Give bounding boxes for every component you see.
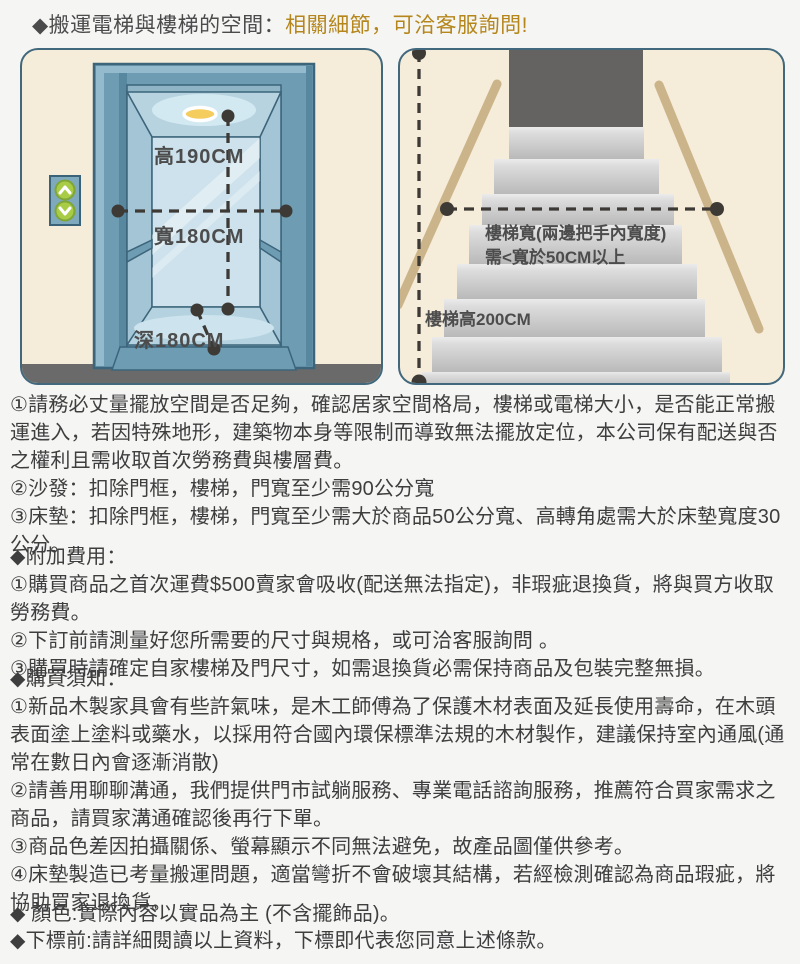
stair-width-label-line2: 需<寬於50CM以上 <box>485 246 666 270</box>
page-title-highlight: 相關細節，可洽客服詢問! <box>285 14 528 37</box>
stair-height-label: 樓梯高200CM <box>425 308 531 332</box>
elevator-dimensions-panel: 高190CM 寬180CM 深180CM <box>20 48 383 385</box>
color-note: ◆ 顏色:實際內容以實品為主 (不含擺飾品)。 <box>10 901 792 928</box>
moving-note-item: ②沙發：扣除門框，樓梯，門寬至少需90公分寬 <box>10 475 792 503</box>
stair-width-label-line1: 樓梯寬(兩邊把手內寬度) <box>485 222 666 246</box>
moving-note-item: ①請務必丈量擺放空間是否足夠，確認居家空間格局，樓梯或電梯大小，是否能正常搬運進… <box>10 391 792 475</box>
footer-notes-section: ◆ 顏色:實際內容以實品為主 (不含擺飾品)。 ◆下標前:請詳細閱讀以上資料，下… <box>10 901 792 955</box>
additional-fee-item: ①購買商品之首次運費$500賣家會吸收(配送無法指定)，非瑕疵退換貨，將與買方收… <box>10 571 792 627</box>
purchase-note-item: ②請善用聊聊溝通，我們提供門市試躺服務、專業電話諮詢服務，推薦符合買家需求之商品… <box>10 777 792 833</box>
additional-fee-item: ②下訂前請測量好您所需要的尺寸與規格，或可洽客服詢問 。 <box>10 627 792 655</box>
product-shipping-info-page: ◆搬運電梯與樓梯的空間：相關細節，可洽客服詢問! <box>0 0 800 964</box>
stair-width-label: 樓梯寬(兩邊把手內寬度) 需<寬於50CM以上 <box>485 222 666 270</box>
stair-landing <box>509 50 643 127</box>
page-title-text: ◆搬運電梯與樓梯的空間： <box>32 14 285 37</box>
elevator-width-label: 寬180CM <box>154 220 244 249</box>
stairs-dimensions-panel: 樓梯寬(兩邊把手內寬度) 需<寬於50CM以上 樓梯高200CM <box>398 48 785 385</box>
purchase-notes-section: ◆購買須知： ①新品木製家具會有些許氣味，是木工師傅為了保護木材表面及延長使用壽… <box>10 665 792 917</box>
additional-fees-section: ◆附加費用： ①購買商品之首次運費$500賣家會吸收(配送無法指定)，非瑕疵退換… <box>10 543 792 683</box>
page-title: ◆搬運電梯與樓梯的空間：相關細節，可洽客服詢問! <box>32 13 528 39</box>
additional-fees-heading: ◆附加費用： <box>10 543 792 571</box>
purchase-note-item: ③商品色差因拍攝關係、螢幕顯示不同無法避免，故產品圖僅供參考。 <box>10 833 792 861</box>
elevator-height-label: 高190CM <box>154 140 244 169</box>
moving-notes-section: ①請務必丈量擺放空間是否足夠，確認居家空間格局，樓梯或電梯大小，是否能正常搬運進… <box>10 391 792 559</box>
elevator-depth-label: 深180CM <box>134 324 224 353</box>
elevator-call-buttons-icon <box>50 176 80 225</box>
before-order-note: ◆下標前:請詳細閱讀以上資料，下標即代表您同意上述條款。 <box>10 928 792 955</box>
purchase-note-item: ①新品木製家具會有些許氣味，是木工師傅為了保護木材表面及延長使用壽命，在木頭表面… <box>10 693 792 777</box>
stairs-illustration-icon <box>398 48 785 385</box>
ceiling-lamp-icon <box>184 108 216 121</box>
purchase-notes-heading: ◆購買須知： <box>10 665 792 693</box>
